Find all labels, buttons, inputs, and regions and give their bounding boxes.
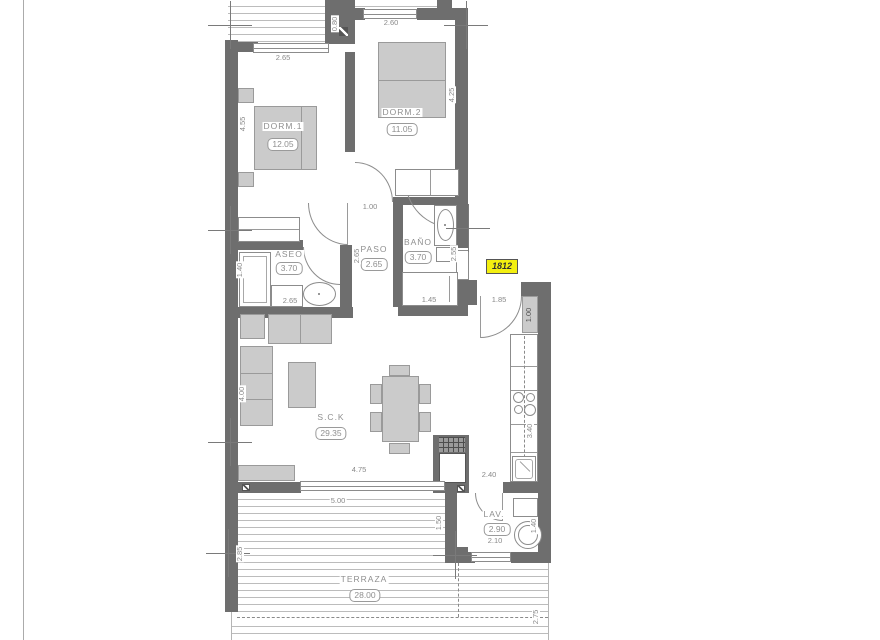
room-label-dorm1: DORM.1	[262, 122, 303, 131]
wall-dorm-divider	[345, 52, 355, 152]
room-label-aseo: ASEO	[274, 250, 304, 259]
dining-chair-right1	[419, 384, 431, 404]
dim-lav-width: 2.10	[487, 537, 504, 545]
armchair	[240, 314, 265, 339]
unit-number-badge: 1812	[486, 259, 518, 274]
dim-aseo-width: 2.65	[282, 297, 299, 305]
living-sliding-door	[300, 481, 445, 491]
room-label-dorm2: DORM.2	[381, 108, 422, 117]
dorm1-bed-fold-line	[301, 107, 302, 169]
stove-burner-3	[514, 405, 523, 414]
dorm1-door-arc	[308, 203, 348, 245]
drain-symbol-top	[339, 27, 348, 36]
lav-window	[471, 552, 511, 562]
room-label-paso: PASO	[360, 245, 389, 254]
survey-cross-7	[433, 531, 477, 579]
terrace-decking-lower	[238, 563, 548, 617]
room-area-sck: 29.35	[315, 427, 346, 440]
aseo-shower-tray	[243, 256, 267, 303]
dorm2-wardrobe	[395, 169, 459, 196]
stove-burner-1	[513, 392, 524, 403]
dim-top-terrace-depth: 0.80	[331, 16, 339, 33]
dim-dorm1-depth: 4.55	[239, 116, 247, 133]
dining-chair-left2	[370, 412, 382, 432]
dining-chair-right2	[419, 412, 431, 432]
shaft-unit-box	[439, 453, 466, 483]
dim-living-window: 4.75	[351, 466, 368, 474]
dim-bano-bath: 1.45	[421, 296, 438, 304]
shaft-hatch	[439, 437, 465, 452]
entry-door-leaf	[480, 296, 481, 338]
dim-dorm2-depth: 4.25	[448, 87, 456, 104]
terrace-edge-left	[231, 612, 232, 640]
room-label-sck: S.C.K	[316, 413, 345, 422]
room-label-bano: BAÑO	[403, 238, 433, 247]
dorm1-nightstand-bottom	[238, 172, 254, 187]
dim-terrace-left-depth: 2.85	[236, 546, 244, 563]
lav-counter	[513, 498, 538, 517]
kitchen-sink-basin	[515, 459, 533, 479]
dim-terrace-right-depth: 2.75	[532, 609, 540, 626]
sofa-top-cushion-line	[300, 315, 301, 343]
aseo-door-arc	[303, 247, 340, 285]
dim-dorm2-window: 2.60	[383, 19, 400, 27]
room-area-dorm2: 11.05	[387, 123, 418, 136]
dorm2-bed-line	[379, 80, 445, 81]
drain-symbol-living	[242, 484, 250, 491]
dim-dorm1-window: 2.65	[275, 54, 292, 62]
sofa-left-cushion-line1	[241, 373, 272, 374]
bano-bathtub-line	[449, 276, 450, 302]
dim-terrace-width: 5.00	[330, 497, 347, 505]
wall-lav-bottom-right	[511, 552, 551, 563]
dim-entry-closet: 1.00	[525, 307, 533, 324]
room-label-terraza: TERRAZA	[340, 575, 389, 584]
room-area-aseo: 3.70	[276, 262, 303, 275]
stove-burner-2	[526, 393, 535, 402]
dim-kitchen-depth: 3.40	[526, 423, 534, 440]
survey-cross-1	[208, 1, 252, 49]
page-border-line	[23, 0, 24, 640]
room-area-dorm1: 12.05	[267, 138, 298, 151]
terrace-boundary-dash-h	[237, 617, 548, 618]
dim-bano-counter: 2.55	[450, 246, 458, 263]
dining-chair-left1	[370, 384, 382, 404]
coffee-table	[288, 362, 316, 408]
dim-aseo-shower: 1.40	[236, 262, 244, 279]
wall-kitchen-bottom	[503, 482, 551, 493]
dim-kitchen-width: 2.40	[481, 471, 498, 479]
terrace-decking-beyond-boundary	[231, 620, 548, 640]
survey-cross-5	[208, 418, 252, 466]
stove-burner-4	[524, 404, 536, 416]
dim-entry-door: 1.85	[491, 296, 508, 304]
survey-cross-2	[444, 1, 488, 49]
dorm1-door-leaf	[347, 203, 348, 245]
dining-chair-top	[389, 365, 410, 376]
wall-aseo-right	[340, 245, 352, 307]
dim-paso-depth: 2.65	[353, 248, 361, 265]
dorm1-nightstand-top	[238, 88, 254, 103]
floor-plan: DORM.1 12.05 DORM.2 11.05 ASEO 3.70 PASO…	[0, 0, 880, 640]
dorm2-wardrobe-divider	[430, 170, 431, 195]
room-area-terraza: 28.00	[349, 589, 380, 602]
dorm1-window	[253, 43, 329, 53]
room-area-lav: 2.90	[484, 523, 511, 536]
room-area-bano: 3.70	[405, 251, 432, 264]
drain-symbol-terrace	[457, 485, 465, 492]
room-area-paso: 2.65	[361, 258, 388, 271]
room-label-lav: LAV.	[482, 510, 505, 519]
terrace-edge-right	[548, 563, 549, 640]
dining-table	[382, 376, 419, 442]
survey-cross-3	[208, 206, 252, 254]
dim-lav-depth: 1.50	[435, 515, 443, 532]
aseo-basin-drain	[318, 293, 320, 295]
wall-dorm2-top-left	[345, 8, 365, 20]
dorm2-door-arc	[355, 162, 393, 202]
dim-hall-door: 1.00	[362, 203, 379, 211]
dim-lav-machine: 1.40	[530, 518, 538, 535]
wall-right-main	[538, 288, 551, 563]
dim-living-depth: 4.00	[238, 386, 246, 403]
dining-chair-bottom	[389, 443, 410, 454]
wall-entry-left-corner	[455, 280, 477, 305]
wall-left-main	[225, 40, 238, 612]
tv-stand	[238, 465, 295, 481]
